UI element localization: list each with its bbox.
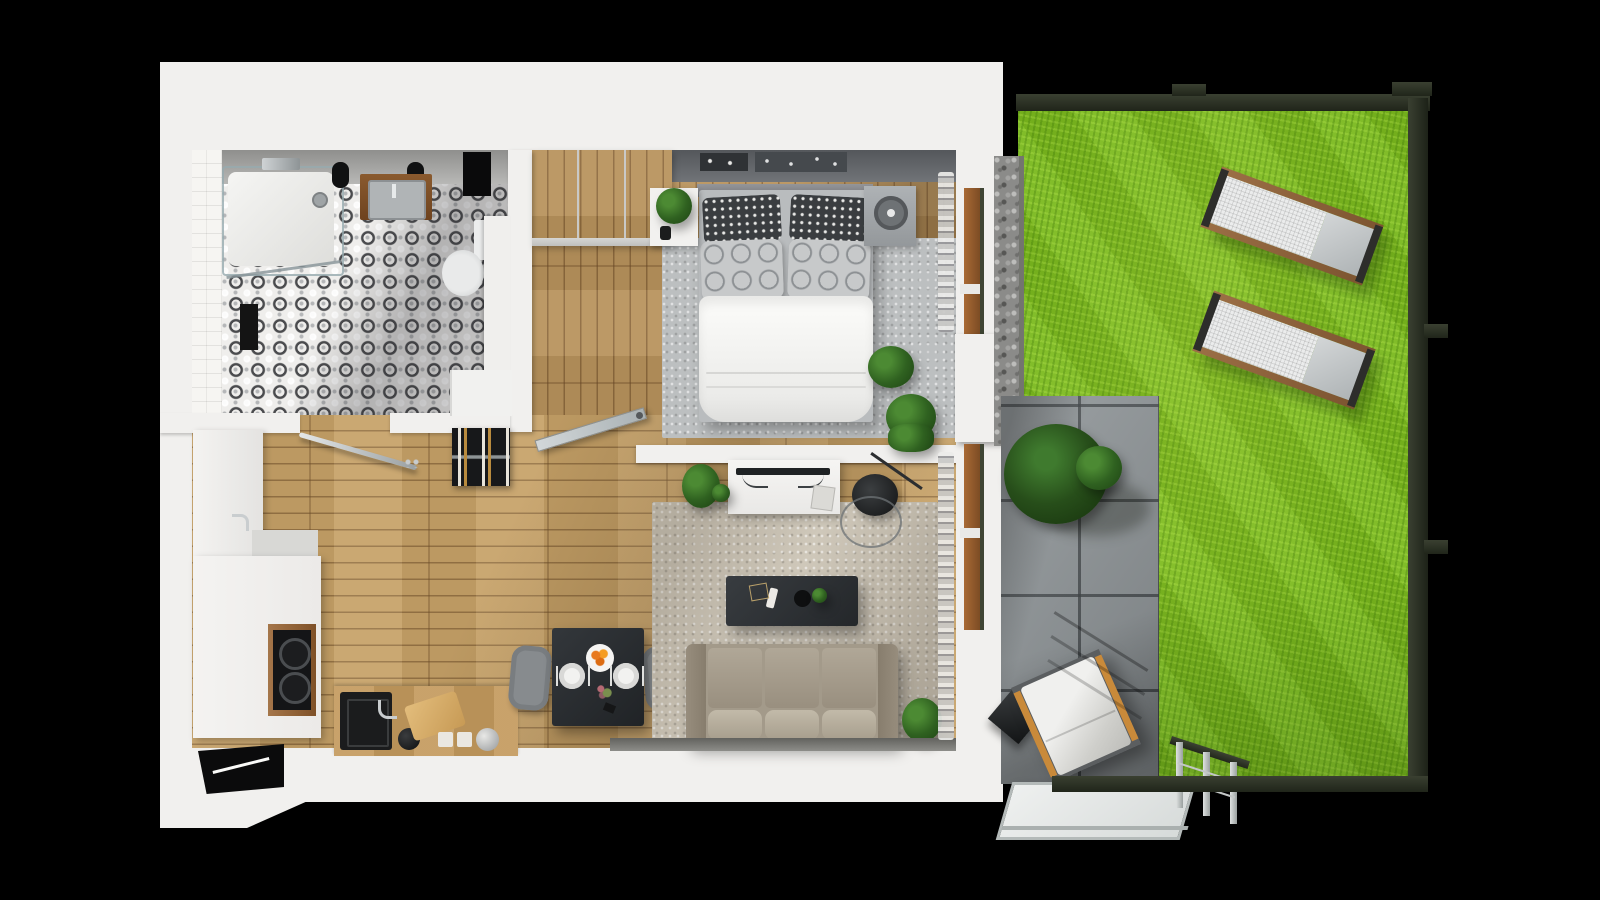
living-bottom-wall-shade bbox=[610, 738, 958, 751]
bathroom-side-cabinet bbox=[484, 216, 510, 372]
dot-pillow-left bbox=[702, 194, 782, 244]
circle-pillow-left bbox=[700, 239, 784, 302]
living-plant-small bbox=[712, 484, 730, 502]
living-curtain bbox=[938, 452, 954, 740]
shower-mixer bbox=[262, 158, 300, 170]
gold-frame bbox=[749, 583, 770, 602]
bedroom-window-frame bbox=[964, 188, 980, 334]
cutlery-left bbox=[556, 666, 558, 686]
fence-bracket-3 bbox=[1424, 324, 1448, 338]
sofa-seat-1 bbox=[708, 648, 762, 708]
coffee-table-plant bbox=[812, 588, 827, 603]
vanity-sink bbox=[368, 180, 426, 220]
canopy-frame-line bbox=[1001, 826, 1188, 830]
dot-pillow-right bbox=[789, 194, 869, 244]
flower-posy bbox=[596, 684, 612, 700]
sofa-back-3 bbox=[822, 710, 876, 740]
bedroom-curtain bbox=[938, 172, 954, 332]
cutlery-right bbox=[610, 666, 612, 686]
fence-bracket-2 bbox=[1392, 82, 1432, 96]
sofa-armrest-left bbox=[686, 644, 706, 744]
sofa-seat-2 bbox=[765, 648, 819, 708]
table-fan-hub bbox=[887, 209, 895, 217]
duvet bbox=[699, 296, 873, 422]
bedroom-window-edge bbox=[980, 188, 984, 334]
railing-post-1 bbox=[1176, 742, 1183, 808]
hot-pad-2 bbox=[457, 732, 472, 747]
book-on-sideboard bbox=[810, 485, 835, 512]
silver-kettle bbox=[476, 728, 499, 751]
bathroom-wall-niche bbox=[463, 152, 491, 196]
dining-chair-left bbox=[507, 644, 552, 711]
floor-lamp-ring bbox=[840, 496, 902, 548]
oven-dial-bottom bbox=[279, 672, 311, 704]
top-shelf-item-dark bbox=[700, 153, 748, 171]
duvet-fold bbox=[706, 372, 866, 374]
sink-faucet bbox=[378, 700, 397, 719]
sofa-seat-3 bbox=[822, 648, 876, 708]
fence-bracket-4 bbox=[1424, 540, 1448, 554]
black-bowl bbox=[794, 590, 811, 607]
shower-drain bbox=[312, 192, 328, 208]
washing-machine bbox=[450, 370, 512, 416]
fence-bracket-1 bbox=[1172, 84, 1206, 96]
plate-left bbox=[559, 663, 585, 689]
coffee-table bbox=[726, 576, 858, 626]
living-window-edge bbox=[980, 444, 984, 630]
railing-post-3 bbox=[1230, 762, 1237, 824]
sconce-left bbox=[332, 162, 349, 188]
fence-top bbox=[1016, 94, 1430, 111]
hot-pad-1 bbox=[438, 732, 453, 747]
bedroom-plant-1 bbox=[868, 346, 914, 388]
coat-hooks bbox=[404, 458, 420, 468]
wall-plant bbox=[888, 424, 934, 452]
bathroom-left-tiled-wall bbox=[192, 150, 222, 415]
door-handle bbox=[636, 412, 643, 419]
fence-right bbox=[1408, 98, 1428, 790]
circle-pillow-right bbox=[787, 239, 871, 302]
entry-niche bbox=[198, 744, 284, 794]
fence-bottom bbox=[1052, 776, 1428, 792]
sofa-side-plant bbox=[902, 698, 942, 742]
plate-right bbox=[613, 663, 639, 689]
toilet-bowl bbox=[442, 250, 484, 296]
building-bottom-left-notch bbox=[160, 800, 310, 828]
top-shelf-item-board bbox=[755, 152, 847, 172]
bath-mat bbox=[240, 304, 258, 350]
kitchen-faucet bbox=[232, 514, 249, 531]
vanity-faucet bbox=[392, 184, 396, 198]
sofa-back-2 bbox=[765, 710, 819, 740]
sofa-back-1 bbox=[708, 710, 762, 740]
sofa-armrest-right bbox=[878, 644, 898, 744]
potted-tree-tuft bbox=[1076, 446, 1122, 490]
wine-rack bbox=[452, 428, 510, 486]
shower-tray bbox=[228, 172, 334, 266]
floor-plan-scene bbox=[0, 0, 1600, 900]
nightstand-plant bbox=[656, 188, 692, 224]
nightstand-vase bbox=[660, 226, 671, 240]
oven-dial-top bbox=[279, 638, 311, 670]
